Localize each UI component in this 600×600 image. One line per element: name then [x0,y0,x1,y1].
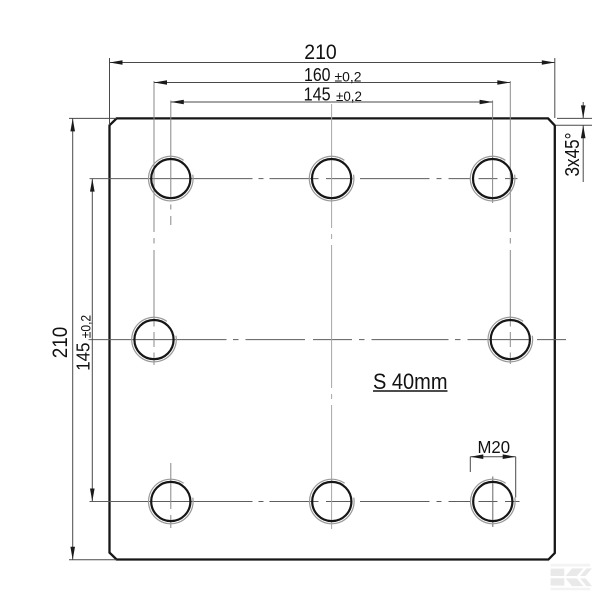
svg-text:160: 160 [304,64,331,85]
svg-text:M20: M20 [478,437,511,457]
svg-text:210: 210 [304,41,337,64]
svg-text:±0,2: ±0,2 [336,89,362,104]
svg-text:210: 210 [49,327,72,359]
svg-text:S 40mm: S 40mm [373,369,448,394]
svg-text:145: 145 [304,83,331,104]
svg-text:3x45°: 3x45° [561,133,584,177]
svg-text:±0,2: ±0,2 [79,315,94,338]
svg-text:145: 145 [73,343,94,371]
svg-text:±0,2: ±0,2 [335,70,362,85]
